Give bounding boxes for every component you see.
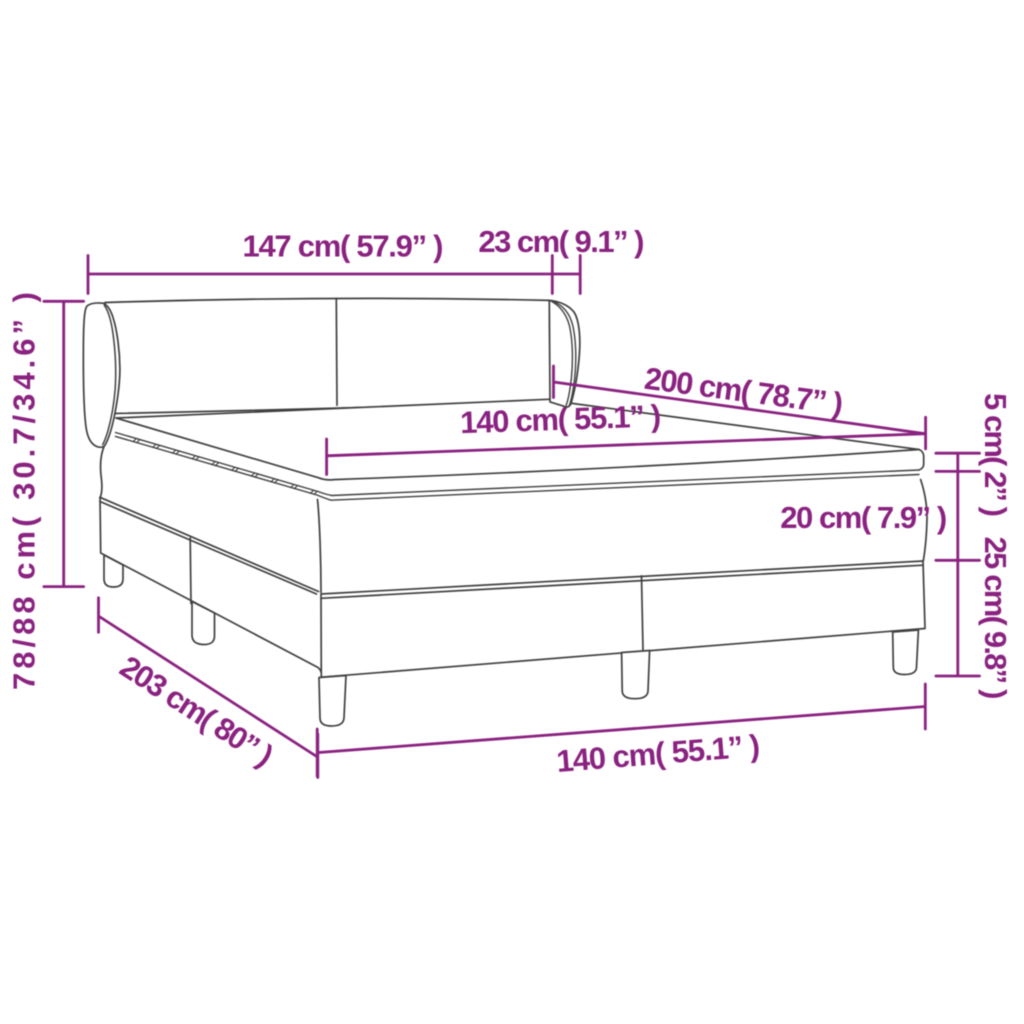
svg-text:23 cm( 9.1” ): 23 cm( 9.1” ) — [478, 224, 644, 259]
svg-text:203 cm( 80” ): 203 cm( 80” ) — [114, 649, 280, 774]
svg-text:140 cm( 55.1” ): 140 cm( 55.1” ) — [555, 728, 761, 779]
svg-text:140 cm( 55.1” ): 140 cm( 55.1” ) — [460, 398, 662, 440]
svg-text:78/88 cm( 30.7/34.6” ): 78/88 cm( 30.7/34.6” ) — [7, 292, 42, 690]
svg-text:25 cm( 9.8” ): 25 cm( 9.8” ) — [978, 537, 1013, 700]
svg-text:5 cm( 2” ): 5 cm( 2” ) — [978, 393, 1013, 517]
svg-text:20 cm( 7.9” ): 20 cm( 7.9” ) — [780, 500, 947, 535]
svg-text:147 cm( 57.9” ): 147 cm( 57.9” ) — [243, 229, 444, 264]
svg-text:200 cm( 78.7” ): 200 cm( 78.7” ) — [642, 361, 845, 422]
